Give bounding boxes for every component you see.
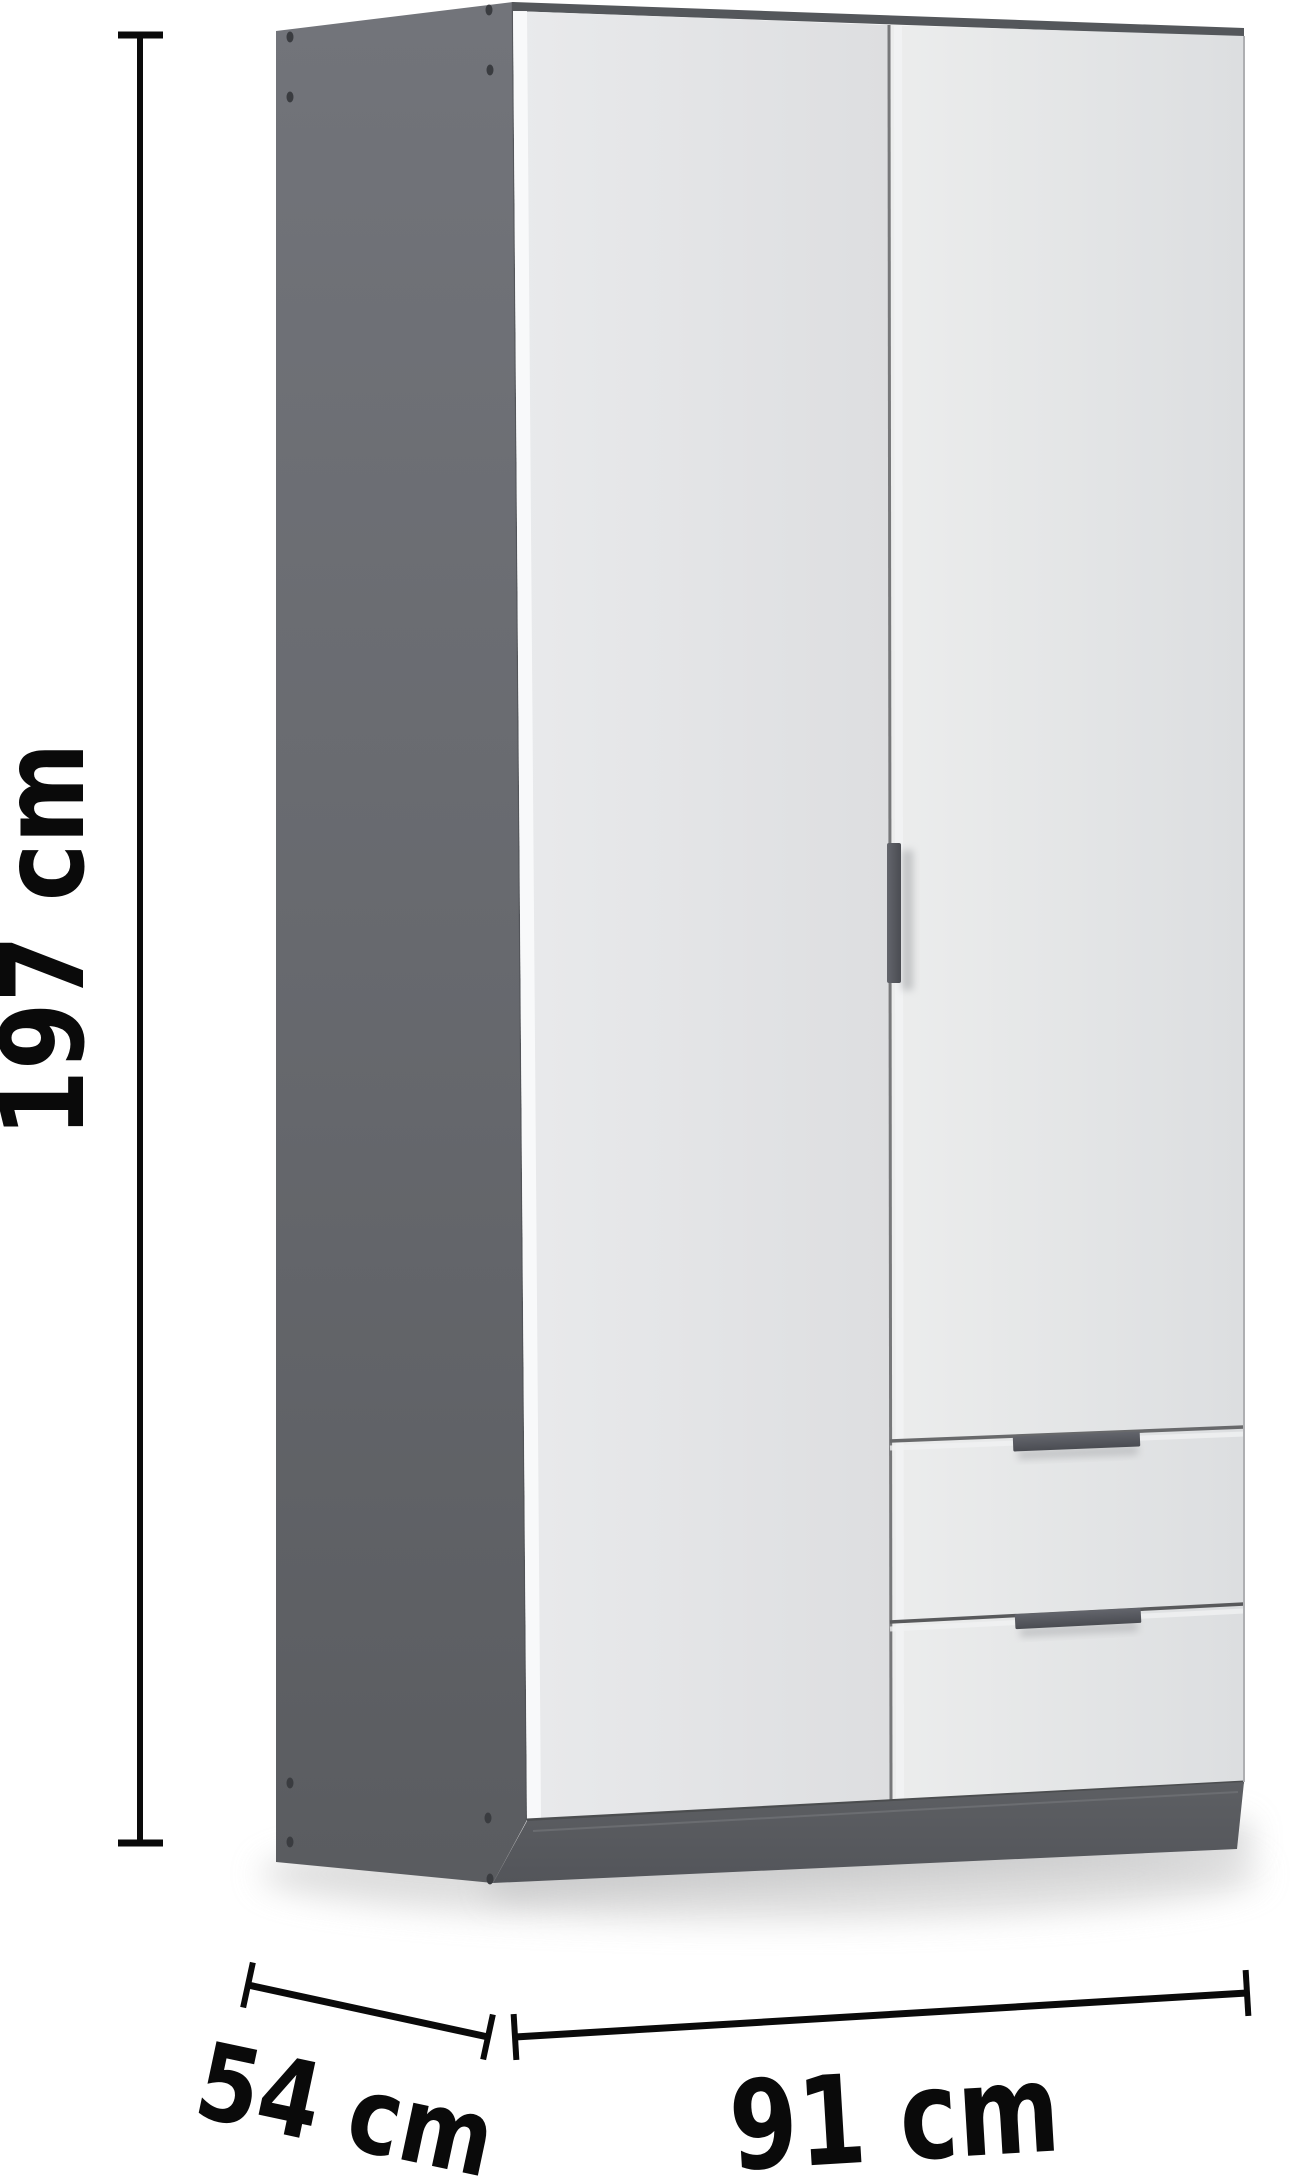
- width-dimension-cap-left: [514, 2014, 517, 2060]
- wardrobe-dimension-diagram: 197 cm 54 cm 91 cm: [0, 0, 1301, 2184]
- door-handle-shadow: [902, 850, 913, 990]
- screw-hole: [287, 32, 294, 43]
- screw-hole: [485, 1813, 492, 1824]
- screw-hole: [486, 5, 493, 16]
- screw-hole: [487, 65, 494, 76]
- wardrobe-side-panel: [276, 2, 527, 1883]
- screw-hole: [287, 1778, 294, 1789]
- screw-hole: [487, 1874, 494, 1885]
- wardrobe-right-door: [889, 25, 1244, 1442]
- depth-dimension-line: [248, 1985, 488, 2037]
- width-dimension-line: [515, 1993, 1247, 2037]
- screw-hole: [287, 1837, 294, 1848]
- wardrobe-dimension-figure: 197 cm 54 cm 91 cm: [0, 0, 1301, 2184]
- wardrobe-left-door: [513, 11, 891, 1820]
- depth-dimension-label: 54 cm: [186, 2019, 505, 2184]
- height-dimension-label: 197 cm: [0, 743, 110, 1138]
- door-handle: [887, 843, 901, 983]
- screw-hole: [287, 92, 294, 103]
- width-dimension-cap-right: [1246, 1970, 1249, 2016]
- width-dimension-label: 91 cm: [726, 2037, 1064, 2184]
